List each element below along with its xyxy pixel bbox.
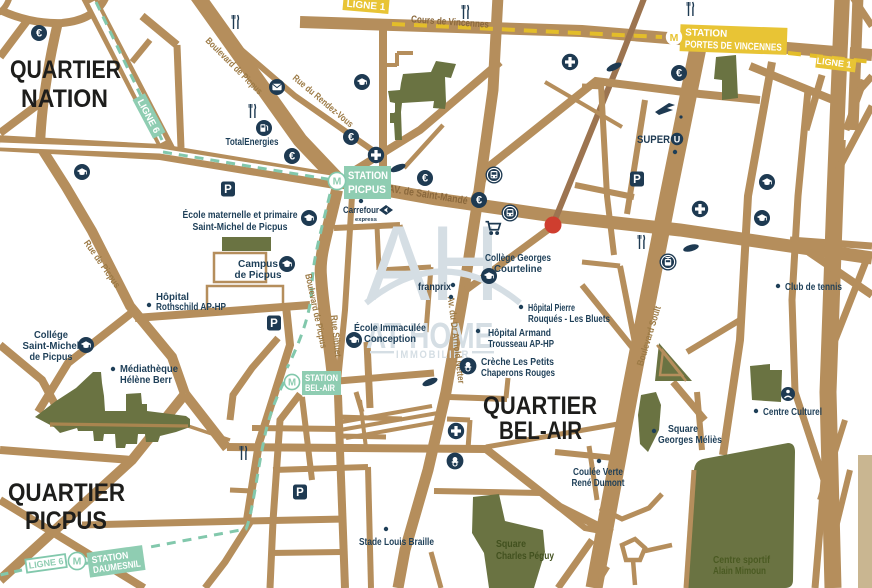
svg-text:Hôpital Armand: Hôpital Armand: [488, 328, 551, 339]
svg-text:SUPER: SUPER: [637, 134, 670, 146]
svg-text:Alain Mimoun: Alain Mimoun: [713, 566, 766, 577]
svg-text:Hélène Berr: Hélène Berr: [120, 375, 172, 386]
svg-text:BEL-AIR: BEL-AIR: [499, 417, 582, 445]
svg-text:Hôpital Pierre: Hôpital Pierre: [528, 303, 575, 314]
svg-text:de Picpus: de Picpus: [235, 270, 282, 281]
svg-text:Saint-Michel de Picpus: Saint-Michel de Picpus: [193, 222, 288, 233]
svg-text:AH: AH: [366, 203, 500, 323]
svg-text:Conception: Conception: [364, 334, 416, 345]
svg-text:Rothschild AP-HP: Rothschild AP-HP: [156, 302, 226, 313]
svg-text:Trousseau AP-HP: Trousseau AP-HP: [488, 339, 554, 350]
svg-text:PICPUS: PICPUS: [348, 184, 386, 196]
svg-text:Square: Square: [668, 424, 698, 435]
svg-text:Saint-Michel: Saint-Michel: [23, 341, 80, 352]
svg-text:Coulée Verte: Coulée Verte: [573, 467, 623, 478]
svg-text:Chaperons Rouges: Chaperons Rouges: [481, 368, 555, 379]
svg-text:Centre Culturel: Centre Culturel: [763, 407, 822, 418]
svg-text:U: U: [674, 135, 681, 145]
svg-text:QUARTIER: QUARTIER: [8, 479, 125, 507]
svg-text:Carrefour: Carrefour: [343, 205, 379, 215]
svg-text:STATION: STATION: [305, 373, 338, 383]
svg-text:École Immaculée: École Immaculée: [354, 321, 426, 334]
svg-text:STATION: STATION: [685, 27, 727, 39]
svg-text:Charles Péguy: Charles Péguy: [496, 551, 554, 562]
svg-text:M: M: [288, 377, 296, 388]
svg-text:Georges Méliès: Georges Méliès: [658, 435, 722, 446]
svg-text:Rouqués - Les Bluets: Rouqués - Les Bluets: [528, 314, 610, 325]
svg-text:BEL-AIR: BEL-AIR: [305, 383, 335, 393]
svg-text:express: express: [355, 217, 377, 223]
svg-text:Collège Georges: Collège Georges: [485, 253, 551, 264]
svg-text:Crèche Les Petits: Crèche Les Petits: [481, 357, 554, 368]
svg-text:NATION: NATION: [21, 85, 108, 113]
svg-text:Médiathèque: Médiathèque: [120, 364, 178, 375]
svg-text:Courteline: Courteline: [494, 264, 542, 275]
svg-text:Campus: Campus: [238, 259, 278, 270]
svg-text:Stade Louis Braille: Stade Louis Braille: [359, 537, 434, 548]
svg-text:STATION: STATION: [348, 170, 388, 182]
svg-text:René Dumont: René Dumont: [572, 478, 626, 489]
svg-text:TotalEnergies: TotalEnergies: [226, 137, 279, 148]
svg-text:Square: Square: [496, 539, 526, 550]
svg-text:Club de tennis: Club de tennis: [785, 282, 842, 293]
svg-text:M: M: [670, 32, 679, 44]
svg-text:École maternelle et primaire: École maternelle et primaire: [183, 208, 298, 221]
svg-text:QUARTIER: QUARTIER: [10, 56, 121, 84]
svg-text:QUARTIER: QUARTIER: [483, 392, 597, 420]
svg-text:franprix: franprix: [418, 281, 451, 293]
svg-text:Collége: Collége: [34, 330, 68, 341]
svg-text:de Picpus: de Picpus: [30, 352, 73, 363]
svg-text:Centre sportif: Centre sportif: [713, 555, 771, 566]
svg-text:PICPUS: PICPUS: [25, 507, 107, 535]
